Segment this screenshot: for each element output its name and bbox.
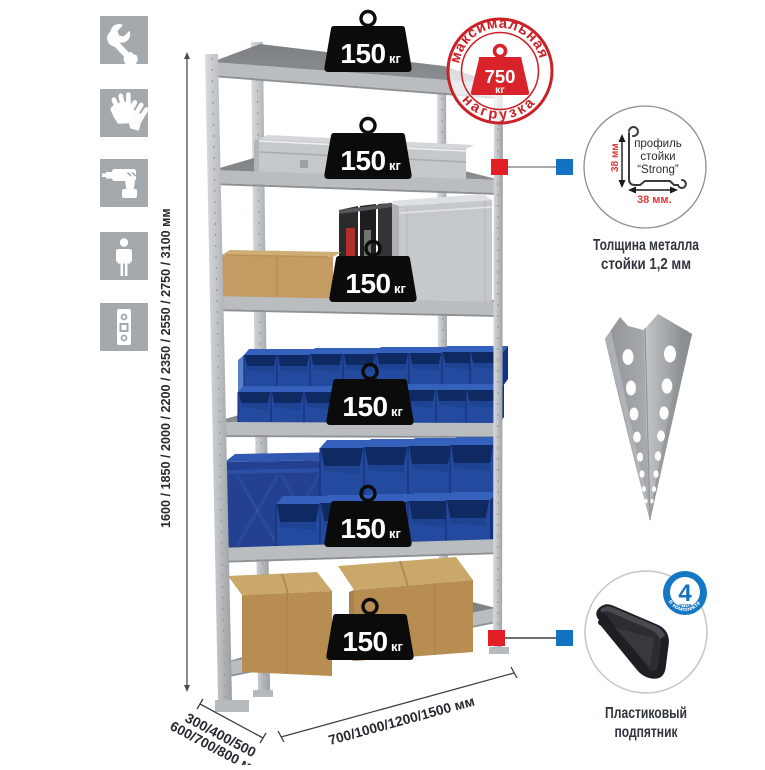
svg-text:1600 / 1850 / 2000 / 2200 / 23: 1600 / 1850 / 2000 / 2200 / 2350 / 2550 … <box>159 208 173 528</box>
svg-text:стойки 1,2 мм: стойки 1,2 мм <box>601 256 691 273</box>
svg-text:38 мм.: 38 мм. <box>637 194 672 206</box>
svg-text:стойки: стойки <box>640 151 675 163</box>
svg-text:кг: кг <box>495 84 505 96</box>
svg-text:38 мм: 38 мм <box>610 143 621 172</box>
svg-text:Пластиковый: Пластиковый <box>605 705 687 722</box>
svg-text:Толщина металла: Толщина металла <box>593 237 699 254</box>
svg-text:“Strong”: “Strong” <box>637 164 679 176</box>
svg-text:профиль: профиль <box>634 138 682 150</box>
svg-text:подпятник: подпятник <box>615 724 678 741</box>
